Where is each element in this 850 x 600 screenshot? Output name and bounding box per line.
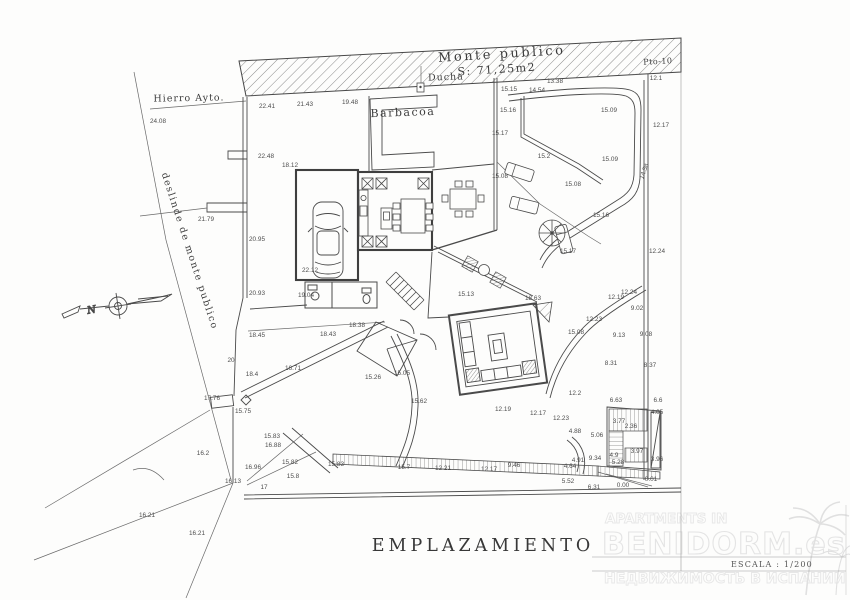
bathroom — [305, 282, 377, 308]
dimension-label: 21.79 — [198, 216, 214, 223]
parasol-symbol — [539, 220, 565, 246]
stairs — [386, 272, 424, 310]
site-plan-drawing: APARTMENTS IN BENIDORM.es НЕДВИЖИМОСТЬ В… — [0, 0, 850, 600]
dimension-label: 15.75 — [235, 408, 251, 415]
dimension-label: 15.8 — [287, 473, 300, 480]
watermark: APARTMENTS IN BENIDORM.es НЕДВИЖИМОСТЬ В… — [602, 502, 850, 595]
sofa-symbol — [459, 322, 476, 367]
dimension-label: 4.9 — [610, 452, 619, 459]
dimension-label: 15.08 — [492, 173, 508, 180]
dimension-label: 16.88 — [265, 442, 281, 449]
dimension-label: 5.52 — [562, 478, 575, 485]
dimension-label: 18.45 — [249, 332, 265, 339]
dimension-label: 16.2 — [197, 450, 210, 457]
dimension-label: 8.37 — [644, 362, 657, 369]
dimension-label: 15.15 — [501, 86, 517, 93]
side-table-symbol — [479, 265, 490, 276]
dimension-label: 2.36 — [625, 423, 638, 430]
dimension-label: 9.46 — [508, 462, 521, 469]
dimension-label: 12.19 — [495, 406, 511, 413]
ducha-label: Ducha — [428, 71, 464, 83]
dimension-label: 8.31 — [605, 360, 618, 367]
dimension-label: 15.7 — [398, 464, 411, 471]
dimension-label: 22.12 — [302, 267, 318, 274]
entry-landing — [357, 252, 449, 376]
dimension-label: 12.21 — [435, 465, 451, 472]
dimension-label: 12.24 — [621, 289, 637, 296]
dimension-label: 20.95 — [249, 236, 265, 243]
north-label: N — [85, 304, 98, 317]
dimension-label: 12.1 — [650, 75, 663, 82]
scale-label: ESCALA : 1/200 — [731, 560, 813, 569]
dimension-label: 22.48 — [258, 153, 274, 160]
dimension-label: 15.2 — [538, 153, 551, 160]
terrace — [432, 78, 497, 250]
dimension-label: 16.13 — [225, 478, 241, 485]
hierro-ayto-label: Hierro Ayto. — [153, 92, 224, 104]
dimension-label: 15.08 — [568, 329, 584, 336]
corner-table-symbol — [522, 360, 537, 375]
dimension-label: 6.63 — [610, 397, 623, 404]
dimension-label: 18.38 — [349, 322, 365, 329]
dimension-label: 6.31 — [588, 484, 601, 491]
garage — [296, 170, 358, 280]
dimension-label: 15.83 — [328, 461, 344, 468]
dimension-label: 5.28 — [612, 459, 625, 466]
dimension-label: 15.17 — [560, 248, 576, 255]
dimension-label: 12.2 — [569, 390, 582, 397]
dimension-label: 12.23 — [586, 316, 602, 323]
barbacoa-label: Barbacoa — [370, 105, 435, 120]
dimension-label: 18.43 — [320, 331, 336, 338]
dimension-label: 18.12 — [282, 162, 298, 169]
dimension-label: 9.02 — [631, 305, 644, 312]
dimension-label: 14.54 — [529, 87, 545, 94]
dimension-label: 19.04 — [298, 292, 314, 299]
sofa-symbol — [481, 365, 522, 381]
dimension-label: 15.26 — [365, 374, 381, 381]
garden-paths — [391, 88, 646, 474]
dimension-label: 17 — [260, 484, 268, 491]
dimension-label: 12.23 — [553, 415, 569, 422]
site-plan-sheet: APARTMENTS IN BENIDORM.es НЕДВИЖИМОСТЬ В… — [0, 0, 850, 600]
dimension-label: 5.06 — [591, 432, 604, 439]
planter-symbol — [462, 256, 478, 272]
dimension-label: 3.96 — [651, 456, 664, 463]
dimension-label: 0.01 — [645, 476, 658, 483]
dimension-label: 21.43 — [297, 101, 313, 108]
pool-deck-furniture — [504, 162, 573, 254]
dining-table — [393, 199, 433, 233]
corner-table-symbol — [466, 368, 481, 383]
toilet-symbol — [362, 288, 371, 293]
dimension-label: 12.24 — [649, 248, 665, 255]
planter-symbol — [490, 272, 506, 288]
dimension-label: 15.83 — [264, 433, 280, 440]
dimension-label: 20.93 — [249, 290, 265, 297]
dimension-label: 15.16 — [593, 212, 609, 219]
dimension-label: 13.38 — [547, 78, 563, 85]
dimension-label: 9.34 — [589, 455, 602, 462]
dimension-label: 18.63 — [525, 295, 541, 302]
dimension-label: 15.05 — [394, 370, 410, 377]
outdoor-dining-table — [442, 181, 484, 217]
dimension-label: 3.97 — [631, 448, 644, 455]
dimension-label: 22.41 — [259, 103, 275, 110]
dimension-label: 17.76 — [204, 395, 220, 402]
dimension-label: 20 — [227, 357, 235, 364]
dimension-label: 15.08 — [565, 181, 581, 188]
kitchen — [359, 190, 392, 236]
dimension-label: 16.96 — [245, 464, 261, 471]
dimension-label: 15.09 — [602, 156, 618, 163]
walkway — [434, 246, 537, 302]
compass-rose: N — [62, 293, 172, 319]
dimension-label: 6.6 — [654, 397, 663, 404]
dimension-label: 18.4 — [246, 371, 259, 378]
dimension-label: 12.17 — [530, 410, 546, 417]
dimension-label: 15.13 — [458, 291, 474, 298]
dimension-label: 15.09 — [601, 107, 617, 114]
dimension-label: 16.71 — [285, 365, 301, 372]
pto-label: Pto-10 — [643, 56, 673, 67]
dimension-label: 16.21 — [189, 530, 205, 537]
dimension-label: 15.17 — [492, 130, 508, 137]
dimension-label: 9.13 — [613, 332, 626, 339]
dimension-label: 12.17 — [653, 122, 669, 129]
dimension-label: 12.17 — [481, 466, 497, 473]
dimension-label: 4.64 — [564, 463, 577, 470]
dimension-label: 16.21 — [139, 512, 155, 519]
dimension-label: 15.82 — [282, 459, 298, 466]
deslinde-label: deslinde de monte publico — [159, 171, 220, 331]
center-table-symbol — [488, 333, 507, 361]
sun-lounger — [504, 162, 534, 182]
dimension-label: 19.48 — [342, 99, 358, 106]
dimension-label: 4.05 — [651, 409, 664, 416]
dimension-label: 15.62 — [411, 398, 427, 405]
lounge-room — [449, 302, 552, 395]
watermark-line1: APARTMENTS IN — [605, 511, 727, 527]
drawing-title: EMPLAZAMIENTO — [372, 536, 594, 556]
dimension-label: 9.08 — [640, 331, 653, 338]
dimension-label: 4.88 — [569, 428, 582, 435]
dimension-label: 24.08 — [150, 118, 166, 125]
dimension-label: 0.00 — [617, 482, 630, 489]
dimension-label: 3.77 — [613, 418, 626, 425]
dimension-label: 15.16 — [500, 107, 516, 114]
